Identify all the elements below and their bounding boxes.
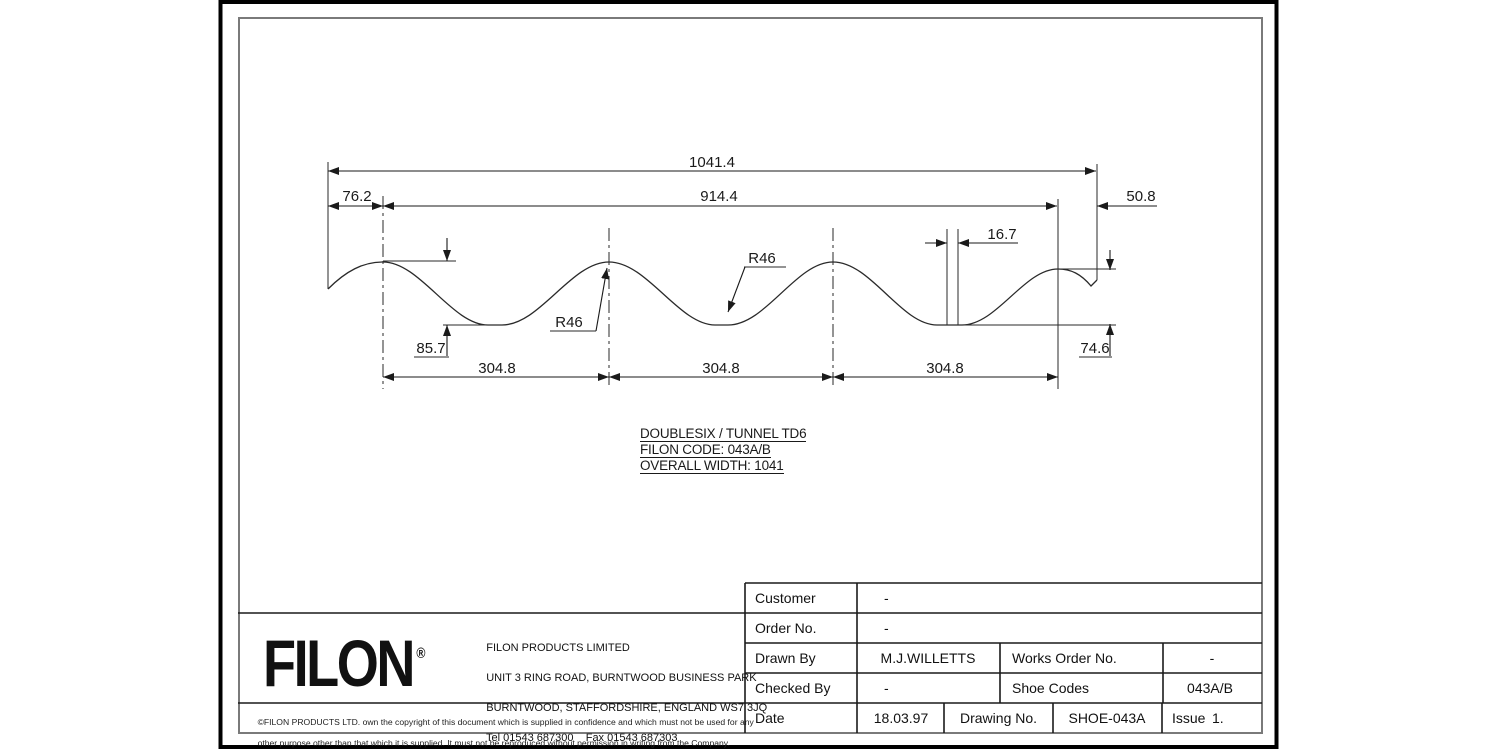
drawing-sheet: 1041.4 914.4 76.2 50.8 16.7 85.7 74.6 30… xyxy=(0,0,1500,750)
drawn-by-value: M.J.WILLETTS xyxy=(881,650,976,666)
dim-pitch-2: 304.8 xyxy=(702,361,740,376)
copyright-line-1: ©FILON PRODUCTS LTD. own the copyright o… xyxy=(258,717,754,727)
dim-depth-left: 85.7 xyxy=(416,341,445,356)
dim-lap-step: 16.7 xyxy=(987,227,1016,242)
dim-radius-1: R46 xyxy=(555,315,583,330)
logo-text: FILON xyxy=(263,626,413,700)
profile-curve xyxy=(328,262,1097,325)
works-order-label: Works Order No. xyxy=(1012,650,1117,666)
registered-mark: ® xyxy=(416,645,425,662)
dim-pitch-3: 304.8 xyxy=(926,361,964,376)
dim-depth-right: 74.6 xyxy=(1080,341,1109,356)
drawing-no-label: Drawing No. xyxy=(960,710,1037,726)
note-overall-width: OVERALL WIDTH: 1041 xyxy=(640,459,784,474)
centerlines xyxy=(383,196,833,389)
date-value: 18.03.97 xyxy=(874,710,929,726)
dim-left-overhang: 76.2 xyxy=(342,189,371,204)
company-line: FILON PRODUCTS LIMITED xyxy=(486,642,630,654)
customer-value: - xyxy=(884,590,889,606)
note-filon-code: FILON CODE: 043A/B xyxy=(640,443,771,458)
customer-label: Customer xyxy=(755,590,816,606)
order-no-label: Order No. xyxy=(755,620,816,636)
checked-by-label: Checked By xyxy=(755,680,830,696)
dimension-lines xyxy=(328,171,1157,377)
product-notes: DOUBLESIX / TUNNEL TD6 FILON CODE: 043A/… xyxy=(640,427,806,475)
filon-logo: FILON® xyxy=(263,626,425,691)
issue-label: Issue xyxy=(1172,710,1205,726)
drawn-by-label: Drawn By xyxy=(755,650,816,666)
dim-radius-2: R46 xyxy=(748,251,776,266)
copyright-note: ©FILON PRODUCTS LTD. own the copyright o… xyxy=(248,706,754,750)
date-label: Date xyxy=(755,710,785,726)
checked-by-value: - xyxy=(884,680,889,696)
shoe-codes-value: 043A/B xyxy=(1187,680,1233,696)
works-order-value: - xyxy=(1210,650,1215,666)
order-no-value: - xyxy=(884,620,889,636)
dim-cover-width: 914.4 xyxy=(700,189,738,204)
dim-pitch-1: 304.8 xyxy=(478,361,516,376)
company-line: UNIT 3 RING ROAD, BURNTWOOD BUSINESS PAR… xyxy=(486,672,756,684)
copyright-line-2: other purpose other than that which it i… xyxy=(258,738,730,748)
dim-right-overhang: 50.8 xyxy=(1126,189,1155,204)
note-product-name: DOUBLESIX / TUNNEL TD6 xyxy=(640,427,806,442)
issue-value: 1. xyxy=(1212,710,1224,726)
drawing-no-value: SHOE-043A xyxy=(1068,710,1145,726)
shoe-codes-label: Shoe Codes xyxy=(1012,680,1089,696)
dim-overall-top: 1041.4 xyxy=(689,155,735,170)
